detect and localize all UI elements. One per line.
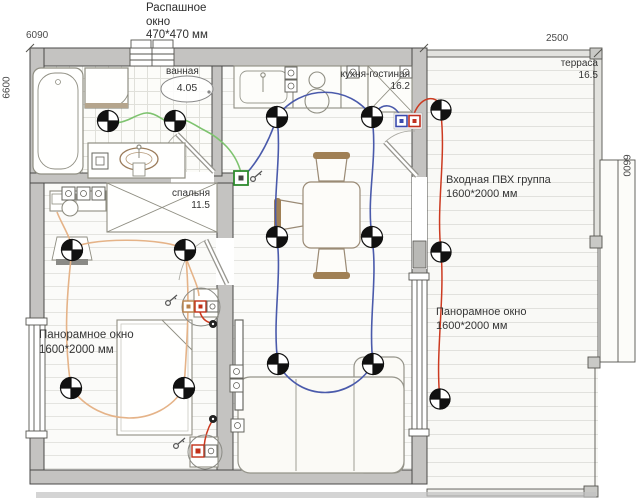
bathtub xyxy=(33,68,83,174)
sofa-body xyxy=(238,377,404,473)
entry-group-label: Входная ПВХ группа 1600*2000 мм xyxy=(446,173,551,201)
swing-window-label: Распашное окно 470*470 мм xyxy=(146,2,208,43)
dimension-top-left: 6090 xyxy=(26,30,48,41)
panoramic-window-left-label: Панорамное окно 1600*2000 мм xyxy=(39,328,134,357)
switch-icon-blue xyxy=(396,116,407,127)
socket-icon xyxy=(230,379,243,392)
dining-set xyxy=(274,152,360,279)
wall-lamp-icon xyxy=(209,320,217,328)
socket-icon xyxy=(205,445,217,457)
swing-window-label-line1: Распашное xyxy=(146,2,208,16)
ceiling-light-icon xyxy=(267,107,288,128)
key-icon xyxy=(166,295,177,305)
socket-icon xyxy=(195,301,206,312)
terrace-area: 16.5 xyxy=(538,70,598,82)
dimension-top-right: 2500 xyxy=(546,33,568,44)
ceiling-light-icon xyxy=(267,227,288,248)
wall-bathroom-right xyxy=(212,66,222,176)
ceiling-light-icon xyxy=(362,227,383,248)
kitchen-living-area: 16.2 xyxy=(330,81,410,93)
ceiling-light-icon xyxy=(268,354,289,375)
switch-icon-red xyxy=(409,116,420,127)
pano-right-line1: Панорамное окно xyxy=(436,305,527,319)
bedroom-area: 11.5 xyxy=(148,200,210,212)
floor-plan: Распашное окно 470*470 мм 6090 2500 6600… xyxy=(0,0,637,502)
pano-left-line1: Панорамное окно xyxy=(39,328,134,343)
ceiling-light-icon xyxy=(61,378,82,399)
panoramic-window-right xyxy=(409,273,429,436)
swing-window-label-line3: 470*470 мм xyxy=(146,29,208,43)
chair xyxy=(316,158,347,181)
ceiling-light-icon xyxy=(430,389,450,409)
socket-icon xyxy=(231,419,244,432)
wall-top xyxy=(30,48,427,66)
ceiling-light-icon xyxy=(165,111,186,132)
ceiling-light-icon xyxy=(431,100,451,120)
ceiling-light-icon xyxy=(363,354,384,375)
pano-right-line2: 1600*2000 мм xyxy=(436,319,527,333)
terrace-name: терраса xyxy=(538,58,598,70)
kitchen-living-label: кухня-гостиная 16.2 xyxy=(330,69,410,93)
wall-lamp-icon xyxy=(209,415,217,423)
chair xyxy=(280,200,303,230)
socket-icon xyxy=(77,187,90,200)
entry-group-line2: 1600*2000 мм xyxy=(446,187,551,201)
swing-window-label-line2: окно xyxy=(146,16,208,30)
dimension-right: 6600 xyxy=(621,146,632,186)
drop-shadow xyxy=(36,492,596,498)
socket-icon xyxy=(92,153,108,169)
door-swing-arc xyxy=(385,131,415,142)
ceiling-light-icon xyxy=(175,240,196,261)
socket-icon xyxy=(183,301,194,312)
socket-icon xyxy=(285,80,297,92)
bathroom-area: 4.05 xyxy=(172,82,202,94)
ceiling-light-icon xyxy=(431,242,451,262)
socket-icon xyxy=(92,187,105,200)
ceiling-light-icon xyxy=(62,240,83,261)
swing-window xyxy=(130,40,174,66)
washing-machine xyxy=(85,68,128,108)
bedroom-name: спальня xyxy=(148,188,210,200)
terrace-top-edge xyxy=(427,50,600,57)
terrace-label: терраса 16.5 xyxy=(538,58,598,82)
terrace-post xyxy=(590,236,602,248)
terrace-steps xyxy=(600,160,635,362)
living-furniture xyxy=(235,320,404,473)
socket-icon xyxy=(230,365,243,378)
pano-left-line2: 1600*2000 мм xyxy=(39,343,134,358)
dining-table xyxy=(303,182,360,248)
ceiling-light-icon xyxy=(98,111,119,132)
bathroom-label: ванная xyxy=(166,66,199,78)
terrace-post xyxy=(588,357,600,368)
entry-fixed-panel xyxy=(413,241,426,268)
bedroom-furniture xyxy=(50,183,218,467)
chair xyxy=(316,249,347,274)
key-icon xyxy=(251,171,262,181)
badge-dot xyxy=(207,90,210,93)
switch-icon-green xyxy=(234,171,248,185)
terrace-structure xyxy=(427,48,635,497)
socket-icon xyxy=(62,187,75,200)
socket-icon xyxy=(192,445,204,457)
ceiling-light-icon xyxy=(362,107,383,128)
kitchen-living-name: кухня-гостиная xyxy=(330,69,410,81)
kitchen-tap xyxy=(261,73,265,77)
socket-icon xyxy=(207,301,218,312)
key-icon xyxy=(174,438,185,448)
bedroom-label: спальня 11.5 xyxy=(148,188,210,212)
panoramic-window-right-label: Панорамное окно 1600*2000 мм xyxy=(436,305,527,333)
entry-group-line1: Входная ПВХ группа xyxy=(446,173,551,187)
socket-icon xyxy=(285,67,297,79)
dimension-left: 6600 xyxy=(2,68,13,108)
stool xyxy=(62,200,78,216)
ceiling-light-icon xyxy=(174,378,195,399)
